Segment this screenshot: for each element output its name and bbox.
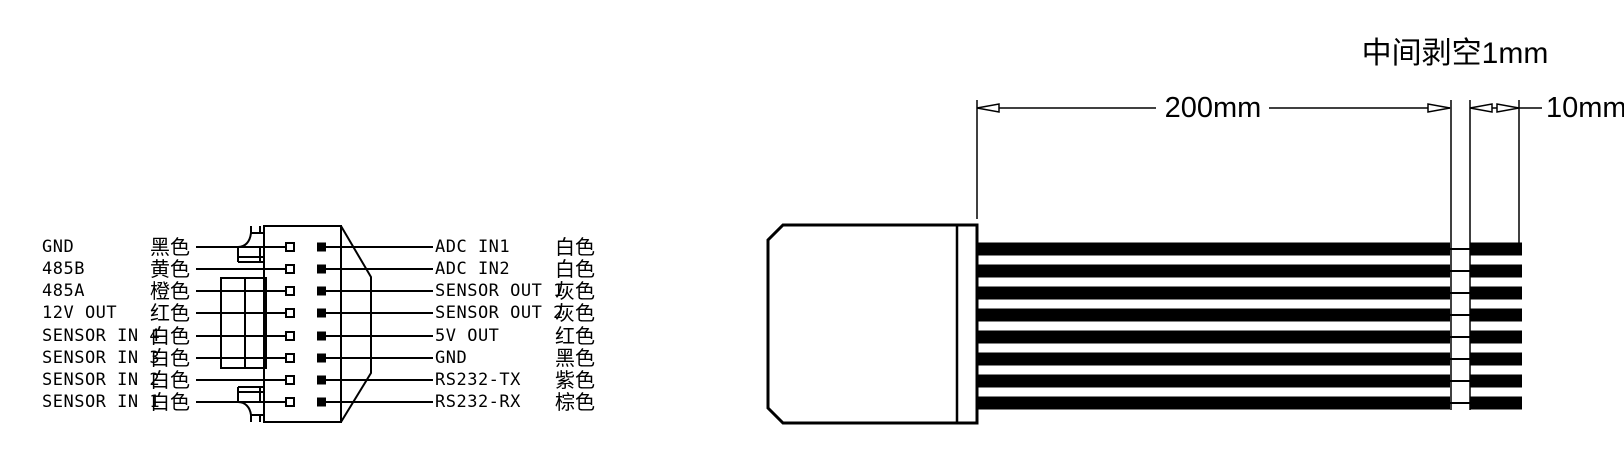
connector-drawing <box>196 226 433 422</box>
pin-color-label: 白色 <box>150 389 190 415</box>
technical-drawing-canvas: GND 黑色 485B 黄色 485A 橙色 12V OUT 红色 SENSOR… <box>0 0 1624 455</box>
cable-drawing <box>768 100 1542 423</box>
connector-body <box>264 226 341 422</box>
connector-bottom-latch <box>238 387 264 422</box>
pin-color-label: 棕色 <box>555 389 595 415</box>
connector-left-leads <box>196 247 288 402</box>
length-dimension-label: 200mm <box>1152 93 1274 123</box>
cable-wires <box>977 243 1522 410</box>
connector-top-latch <box>238 226 264 262</box>
cable-connector-block <box>768 225 977 423</box>
connector-pin-squares <box>286 243 326 407</box>
mid-strip-note: 中间剥空1mm <box>1330 38 1580 70</box>
connector-right-face <box>341 226 371 422</box>
pin-column-left <box>286 243 294 406</box>
connector-right-leads <box>326 247 433 402</box>
wire-bare-core-segments <box>1450 249 1470 403</box>
tip-strip-dimension-label: 10mm <box>1546 93 1624 123</box>
wire-insulation-segments <box>977 243 1522 410</box>
pin-signal-label: RS232-RX <box>435 389 521 415</box>
dimension-10mm <box>1470 104 1542 112</box>
pin-signal-label: SENSOR IN 1 <box>42 389 160 415</box>
pin-column-right <box>317 243 326 407</box>
